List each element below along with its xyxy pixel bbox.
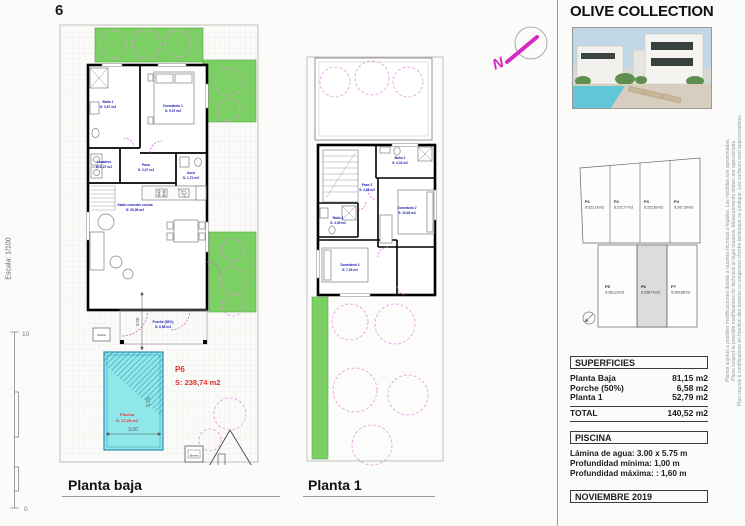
svg-text:P4: P4 bbox=[674, 199, 680, 204]
total-row: TOTAL 140,52 m2 bbox=[570, 409, 708, 419]
svg-text:S: 4,05 m2: S: 4,05 m2 bbox=[330, 221, 346, 225]
title-underline bbox=[62, 496, 280, 497]
piscina-header: PISCINA bbox=[570, 431, 708, 444]
svg-text:S:221,16 m2: S:221,16 m2 bbox=[585, 206, 604, 210]
svg-text:Porche (50%): Porche (50%) bbox=[153, 320, 174, 324]
date-header: NOVIEMBRE 2019 bbox=[570, 490, 708, 503]
pump-box: Bomba bbox=[185, 446, 203, 462]
piscina-line: Lámina de agua: 3.00 x 5.75 m bbox=[570, 449, 708, 459]
site-plan: P1 S:221,16 m2 P2 S:217,77 m2 P3 S:222,6… bbox=[565, 150, 715, 332]
svg-text:S: 4,68 m2: S: 4,68 m2 bbox=[359, 188, 375, 192]
svg-text:S:238,74 m2: S:238,74 m2 bbox=[641, 291, 660, 295]
title-underline bbox=[303, 496, 435, 497]
wardrobe2 bbox=[380, 215, 392, 243]
roof-outline bbox=[315, 58, 432, 140]
svg-text:S:217,77 m2: S:217,77 m2 bbox=[614, 206, 633, 210]
svg-text:S: 4,03 m2: S: 4,03 m2 bbox=[392, 161, 408, 165]
garden-strip bbox=[312, 297, 328, 459]
svg-text:3.05: 3.05 bbox=[135, 317, 140, 326]
svg-text:Bomba: Bomba bbox=[190, 454, 199, 458]
svg-text:S: 2,07 m2: S: 2,07 m2 bbox=[96, 165, 112, 169]
svg-text:S: 10,65 m2: S: 10,65 m2 bbox=[398, 211, 416, 215]
svg-text:10: 10 bbox=[22, 331, 30, 338]
svg-text:Aseo: Aseo bbox=[187, 171, 195, 175]
table-rule bbox=[570, 406, 708, 407]
svg-text:P1: P1 bbox=[585, 199, 591, 204]
planta-baja-title: Planta baja bbox=[68, 477, 142, 493]
svg-text:P3: P3 bbox=[644, 199, 650, 204]
svg-text:Paso 2: Paso 2 bbox=[362, 183, 373, 187]
kitchen-counter bbox=[142, 186, 206, 200]
scale-label: Escala: 1/100 bbox=[6, 224, 13, 294]
svg-text:3.00: 3.00 bbox=[128, 427, 138, 433]
svg-text:P5: P5 bbox=[605, 284, 611, 289]
svg-text:Baño 2: Baño 2 bbox=[395, 156, 406, 160]
svg-text:5.75: 5.75 bbox=[146, 397, 152, 407]
svg-text:P6: P6 bbox=[641, 284, 647, 289]
table-row: Planta 1 52,79 m2 bbox=[570, 393, 708, 403]
svg-text:Dormitorio 1: Dormitorio 1 bbox=[163, 104, 183, 108]
planta1-title: Planta 1 bbox=[308, 477, 362, 493]
planta1-drawing: Baño 2 S: 4,03 m2 Paso 2 S: 4,68 m2 Dorm… bbox=[300, 50, 448, 468]
plot-area-label: S: 238,74 m2 bbox=[175, 378, 220, 387]
sheet-number: 6 bbox=[55, 2, 63, 19]
piscina-line: Profundidad mínima: 1,00 m bbox=[570, 459, 708, 469]
collection-title: OLIVE COLLECTION bbox=[570, 3, 740, 20]
svg-text:S: 9,97 m2: S: 9,97 m2 bbox=[165, 109, 181, 113]
svg-text:Baño 1: Baño 1 bbox=[103, 100, 114, 104]
svg-text:S: 7,04 m2: S: 7,04 m2 bbox=[342, 268, 358, 272]
north-arrow-icon: N bbox=[487, 22, 551, 74]
svg-text:S: 30,05 m2: S: 30,05 m2 bbox=[126, 208, 144, 212]
svg-text:Dormitorio 3: Dormitorio 3 bbox=[341, 263, 360, 267]
villa-photo bbox=[572, 27, 712, 109]
legal-disclaimer: Planos sujetos a posibles modificaciones… bbox=[726, 100, 743, 420]
superficies-table: Planta Baja 81,15 m2 Porche (50%) 6,58 m… bbox=[570, 374, 708, 403]
svg-text:0: 0 bbox=[24, 506, 28, 513]
svg-text:Paso: Paso bbox=[142, 163, 150, 167]
piscina-details: Lámina de agua: 3.00 x 5.75 m Profundida… bbox=[570, 449, 708, 478]
scale-ruler-icon: 10 0 bbox=[4, 322, 34, 518]
table-rule bbox=[570, 421, 708, 422]
svg-text:Ducha: Ducha bbox=[97, 333, 106, 337]
svg-text:S: 2,47 m2: S: 2,47 m2 bbox=[138, 168, 154, 172]
svg-text:N: N bbox=[490, 53, 507, 73]
svg-text:Salón comedor cocina: Salón comedor cocina bbox=[117, 203, 152, 207]
svg-text:P7: P7 bbox=[671, 284, 677, 289]
piscina-line: Profundidad máxima: : 1,60 m bbox=[570, 469, 708, 479]
planta-baja-drawing: Ducha Piscina S: 17,25 m2 3.00 5.75 3.05… bbox=[58, 22, 262, 465]
svg-text:S:207,39 m2: S:207,39 m2 bbox=[674, 206, 693, 210]
plot-id-label: P6 bbox=[175, 365, 185, 374]
svg-text:Lavadero: Lavadero bbox=[97, 160, 112, 164]
svg-text:S: 3,97 m2: S: 3,97 m2 bbox=[100, 105, 116, 109]
plan-sheet: 6 Escala: 1/100 10 0 bbox=[0, 0, 745, 526]
superficies-header: SUPERFICIES bbox=[570, 356, 708, 369]
bed-icon bbox=[148, 72, 194, 124]
svg-text:Baño 3: Baño 3 bbox=[333, 216, 344, 220]
svg-text:S:222,60 m2: S:222,60 m2 bbox=[644, 206, 663, 210]
svg-text:S: 6,58 m2: S: 6,58 m2 bbox=[155, 325, 171, 329]
compass-icon bbox=[583, 312, 595, 324]
panel-divider bbox=[557, 0, 558, 526]
svg-text:Piscina: Piscina bbox=[120, 412, 135, 417]
svg-text:Dormitorio 2: Dormitorio 2 bbox=[398, 206, 417, 210]
outdoor-shower: Ducha bbox=[93, 328, 110, 341]
svg-text:P2: P2 bbox=[614, 199, 620, 204]
svg-text:S:261,23 m2: S:261,23 m2 bbox=[605, 291, 624, 295]
svg-text:S: 17,25 m2: S: 17,25 m2 bbox=[116, 418, 139, 423]
svg-text:S: 1,70 m2: S: 1,70 m2 bbox=[183, 176, 199, 180]
svg-text:S:203,88 m2: S:203,88 m2 bbox=[671, 291, 690, 295]
